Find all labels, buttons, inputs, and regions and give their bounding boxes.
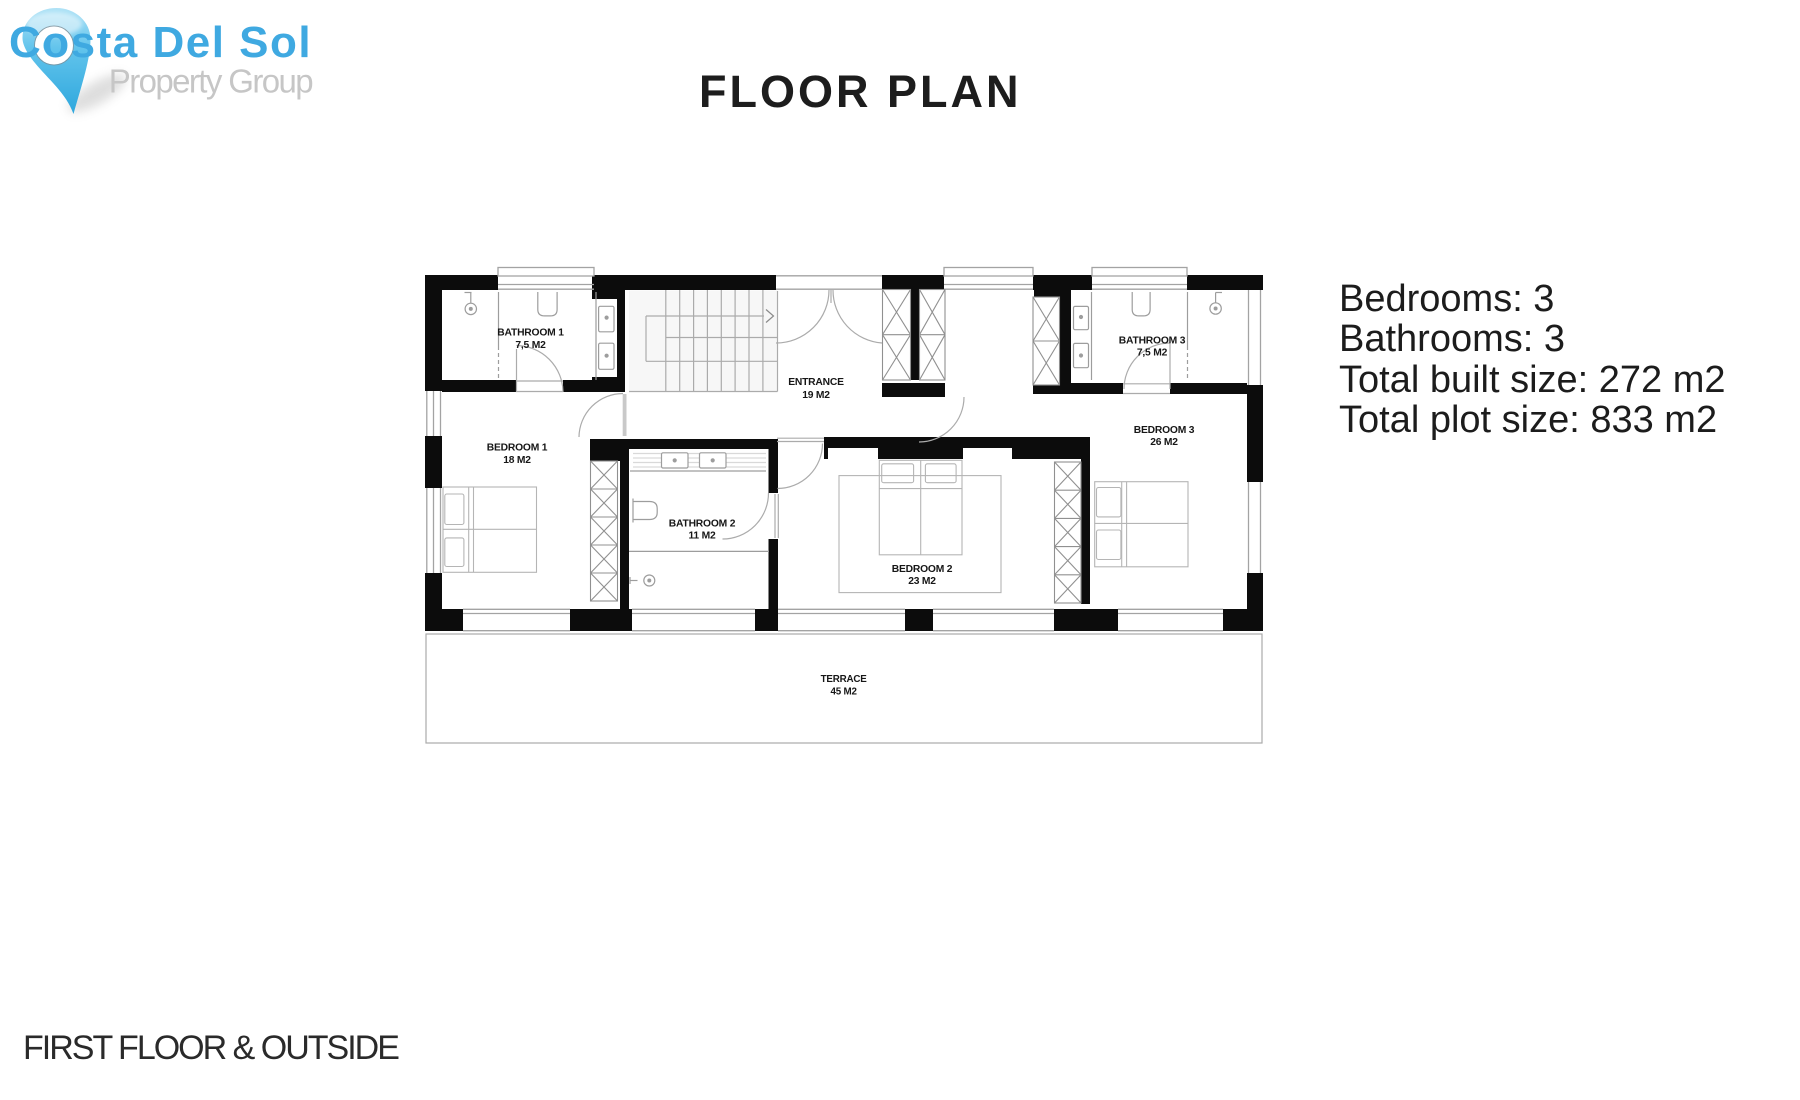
svg-text:19 M2: 19 M2 <box>802 390 830 401</box>
svg-text:11 M2: 11 M2 <box>688 531 716 542</box>
svg-text:26 M2: 26 M2 <box>1150 437 1178 448</box>
svg-text:7,5 M2: 7,5 M2 <box>515 340 546 351</box>
svg-text:23 M2: 23 M2 <box>908 576 936 587</box>
svg-text:BATHROOM 3: BATHROOM 3 <box>1119 336 1186 347</box>
svg-text:TERRACE: TERRACE <box>821 674 868 685</box>
svg-text:Costa Del Sol: Costa Del Sol <box>9 18 312 67</box>
svg-text:BEDROOM 2: BEDROOM 2 <box>892 564 953 575</box>
svg-text:7,5 M2: 7,5 M2 <box>1137 348 1168 359</box>
svg-text:BATHROOM 2: BATHROOM 2 <box>669 519 736 530</box>
svg-text:BATHROOM 1: BATHROOM 1 <box>497 328 564 339</box>
svg-text:Property Group: Property Group <box>109 63 312 100</box>
svg-text:18 M2: 18 M2 <box>503 455 531 466</box>
svg-text:ENTRANCE: ENTRANCE <box>788 377 844 388</box>
svg-text:45 M2: 45 M2 <box>830 687 857 698</box>
svg-text:BEDROOM 1: BEDROOM 1 <box>487 443 548 454</box>
svg-text:BEDROOM 3: BEDROOM 3 <box>1134 425 1195 436</box>
